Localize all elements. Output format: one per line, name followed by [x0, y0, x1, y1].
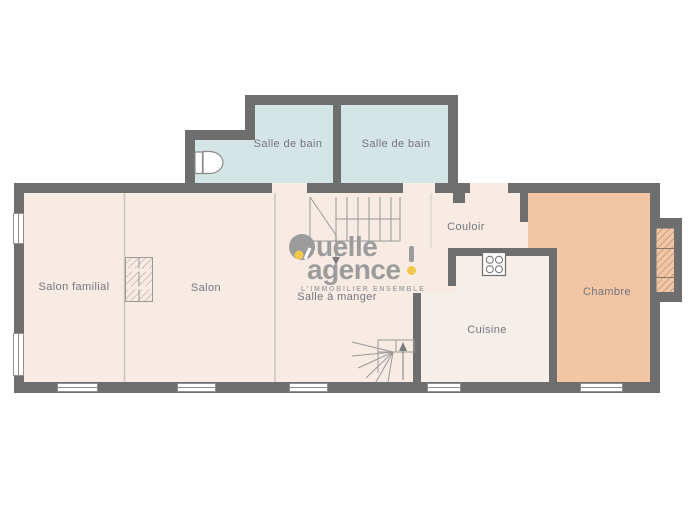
- wall-top-stub: [453, 193, 465, 203]
- window: [427, 383, 461, 392]
- wall-bath-right: [448, 95, 458, 183]
- wall-kitchen-left: [448, 248, 456, 286]
- window: [13, 333, 24, 376]
- floor-plan: Salle de bain Salle de bain Salon famili…: [0, 0, 700, 525]
- wall-bath-top: [245, 95, 458, 105]
- label-hallway: Couloir: [447, 221, 485, 233]
- wall-hallway-bedroom: [520, 193, 528, 222]
- brand-exclamation-icon: [407, 246, 416, 275]
- label-bathroom1: Salle de bain: [254, 138, 323, 150]
- wall-kitchen-top: [448, 248, 557, 256]
- wall-top-4: [508, 183, 660, 193]
- wall-top-3: [435, 183, 470, 193]
- wall-top-2: [307, 183, 403, 193]
- brand-line2: agence: [307, 256, 401, 284]
- chimney-icon: [650, 218, 682, 302]
- label-living-room: Salon: [191, 282, 221, 294]
- window: [13, 213, 24, 244]
- window: [580, 383, 623, 392]
- wall-dining-right: [413, 293, 421, 382]
- wall-top-1: [14, 183, 272, 193]
- wall-bath-left-lower: [185, 130, 195, 183]
- brand-tagline: L'IMMOBILIER ENSEMBLE: [301, 286, 425, 293]
- brand-text-2: agence: [307, 256, 401, 284]
- label-bedroom: Chambre: [583, 286, 631, 298]
- wall-kitchen-right: [549, 248, 557, 382]
- label-kitchen: Cuisine: [467, 324, 507, 336]
- label-family-room: Salon familial: [38, 281, 109, 293]
- wall-bath-divider: [333, 105, 341, 183]
- window: [57, 383, 98, 392]
- wall-bottom: [14, 382, 660, 393]
- label-bathroom2: Salle de bain: [362, 138, 431, 150]
- window: [177, 383, 216, 392]
- wall-bath-notch: [185, 130, 255, 140]
- window: [289, 383, 328, 392]
